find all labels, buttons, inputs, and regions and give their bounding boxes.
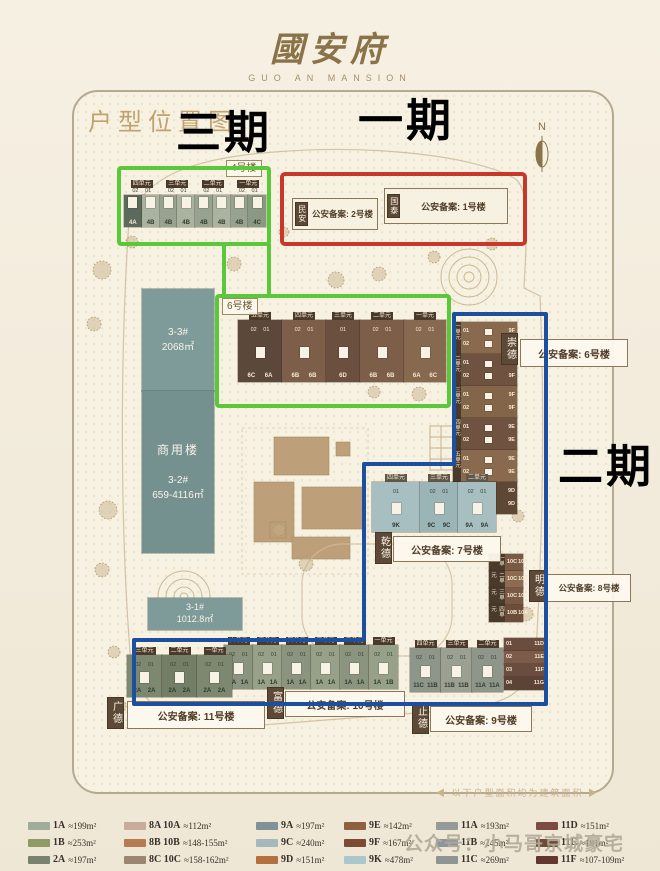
window-icon	[473, 503, 482, 514]
block-3-1-area: 1012.8㎡	[177, 614, 214, 626]
block-3-1: 3-1# 1012.8㎡	[148, 598, 242, 630]
building-guotai-filing: 公安备案: 1号楼	[400, 200, 507, 213]
compass-n-label: N	[538, 121, 546, 133]
window-icon	[378, 347, 387, 358]
page-watermark: 公众号：小马哥京城豪宅	[404, 829, 624, 856]
building-fude-filing: 公安备案: 10号楼	[285, 691, 405, 717]
zhide-wing-row: 0111D	[504, 638, 546, 651]
header: 國安府 GUO AN MANSION	[0, 22, 660, 83]
building-4-tag: 4号楼	[226, 160, 262, 177]
fude-section: 一单元 02 01 1A1B	[369, 645, 398, 689]
window-icon	[485, 405, 492, 411]
commercial-building-label: 商用楼	[157, 441, 199, 459]
window-icon	[485, 393, 492, 399]
window-icon	[263, 663, 272, 674]
building-zhide: 四单元 02 01 11C11B 三单元 02 01 11B11B 二单元 02…	[410, 648, 503, 692]
unit-cell: 4B	[142, 195, 160, 227]
building-mingde: 一单元 10C10C 二单元 10C10C 三单元 10C10C 四单元 10B…	[489, 554, 523, 622]
fude-section: 三单元 02 01 1A1A	[311, 645, 340, 689]
legend-item: 1B≈253m²	[28, 837, 124, 848]
building-6-section: 四单元 02 01 6B6B	[282, 320, 326, 382]
unit-tag: 三单元	[166, 180, 188, 188]
building-chongde-filing: 公安备案: 6号楼	[520, 339, 628, 367]
building-qiande-name: 乾德	[375, 532, 392, 564]
compass-icon: N	[536, 121, 548, 172]
building-6-section: 一单元 02 01 6A6C	[404, 320, 446, 382]
window-icon	[392, 503, 401, 514]
window-icon	[235, 197, 244, 208]
block-3-3-area: 2068㎡	[162, 340, 194, 355]
window-icon	[164, 197, 173, 208]
door-numbers: 02 01	[239, 188, 258, 195]
building-mingde-filing: 公安备案: 8号楼	[547, 574, 631, 602]
window-icon	[292, 663, 301, 674]
chongde-section: 三单元 019F 029F	[453, 386, 517, 418]
window-icon	[350, 663, 359, 674]
building-4: 四单元 三单元 二单元 一单元 02 01 02 01 02 01 02 01 …	[124, 180, 266, 227]
block-3-2-area: 659-4116㎡	[152, 488, 204, 503]
building-guotai: 国泰 公安备案: 1号楼	[384, 188, 508, 224]
legend-swatch	[124, 856, 146, 864]
legend-swatch	[124, 839, 146, 847]
window-icon	[210, 672, 219, 683]
building-6-tag: 6号楼	[222, 298, 258, 315]
guangde-section: 一单元 02 01 2A2A	[197, 655, 232, 697]
building-minan-filing: 公安备案: 2号楼	[308, 208, 377, 220]
legend-swatch	[256, 839, 278, 847]
window-icon	[485, 329, 492, 335]
phase2-label: 二期	[558, 430, 654, 495]
window-icon	[485, 361, 492, 367]
fude-section: 四单元 02 01 1A1A	[282, 645, 311, 689]
legend-item: 8A 10A≈112m²	[124, 820, 256, 831]
legend-swatch	[256, 856, 278, 864]
zhide-wing-row: 0311F	[504, 664, 546, 677]
legend-swatch	[344, 822, 366, 830]
building-guangde-filing: 公安备案: 11号楼	[127, 701, 265, 729]
building-4-unit-tags: 四单元 三单元 二单元 一单元	[124, 180, 266, 188]
window-icon	[300, 347, 309, 358]
building-qiande: 四单元 01 9K 三单元 02 01 9C9C 二单元 02 01 9A9A	[372, 482, 496, 532]
door-numbers: 02 01	[168, 188, 187, 195]
window-icon	[321, 663, 330, 674]
qiande-section: 三单元 02 01 9C9C	[420, 482, 458, 532]
legend-swatch	[344, 839, 366, 847]
legend-swatch	[256, 822, 278, 830]
building-zhide-east-wing: 0111D 0211E 0311F 0411G	[504, 638, 546, 690]
window-icon	[421, 666, 430, 677]
block-3-1-id: 3-1#	[186, 602, 204, 614]
legend-item: 9C≈240m²	[256, 837, 344, 848]
building-qiande-filing: 公安备案: 7号楼	[393, 536, 501, 562]
window-icon	[253, 197, 262, 208]
mingde-section: 二单元 10C10C	[489, 571, 523, 588]
window-icon	[452, 666, 461, 677]
legend-swatch	[28, 839, 50, 847]
window-icon	[421, 347, 430, 358]
window-icon	[485, 425, 492, 431]
building-minan-name: 民安	[295, 202, 308, 226]
building-chongde-name: 崇德	[501, 333, 518, 365]
window-icon	[146, 197, 155, 208]
unit-cell: 4B	[195, 195, 213, 227]
legend-item: 1A≈199m²	[28, 820, 124, 831]
unit-tag: 二单元	[202, 180, 224, 188]
unit-tag: 四单元	[131, 180, 153, 188]
door-numbers: 02 01	[203, 188, 222, 195]
building-zhide-name: 止德	[412, 702, 429, 734]
window-icon	[483, 666, 492, 677]
legend-swatch	[28, 856, 50, 864]
door-numbers: 02 01	[132, 188, 151, 195]
fude-section: 五单元 02 01 1A1A	[253, 645, 282, 689]
heritage-building	[242, 428, 368, 574]
zhide-section: 二单元 02 01 11A11A	[472, 648, 503, 692]
building-4-cells: 4A 4B 4B 4B 4B 4B 4B 4C	[124, 195, 266, 227]
unit-cell: 4B	[213, 195, 231, 227]
fude-section: 二单元 02 01 1A1A	[340, 645, 369, 689]
building-guotai-name: 国泰	[387, 194, 400, 218]
chongde-section: 四单元 019E 029E	[453, 418, 517, 450]
block-3-3: 3-3# 2068㎡	[142, 289, 214, 391]
building-minan: 民安 公安备案: 2号楼	[292, 198, 378, 230]
building-zhide-filing: 公安备案: 9号楼	[430, 706, 532, 732]
window-icon	[485, 341, 492, 347]
building-6-section: 五单元 02 01 6C6A	[238, 320, 282, 382]
building-mingde-name: 明德	[529, 570, 546, 602]
building-guangde: 三单元 02 01 2A2A 二单元 02 01 2A2A 一单元 02 01 …	[127, 655, 232, 697]
unit-tag: 一单元	[237, 180, 259, 188]
legend-swatch	[28, 822, 50, 830]
zhide-wing-row: 0411G	[504, 677, 546, 690]
window-icon	[435, 503, 444, 514]
qiande-section: 二单元 02 01 9A9A	[458, 482, 496, 532]
unit-cell: 4B	[231, 195, 249, 227]
window-icon	[485, 373, 492, 379]
block-3-2-id: 3-2#	[168, 473, 188, 488]
building-6-section: 二单元 02 01 6B6B	[360, 320, 404, 382]
zhide-wing-row: 0211E	[504, 651, 546, 664]
block-3-2-commercial: 商用楼 3-2# 659-4116㎡	[142, 391, 214, 553]
legend-item: 8C 10C≈158-162m²	[124, 854, 256, 865]
zhide-section: 四单元 02 01 11C11B	[410, 648, 441, 692]
window-icon	[199, 197, 208, 208]
window-icon	[485, 437, 492, 443]
legend-item: 2A≈197m²	[28, 854, 124, 865]
window-icon	[128, 197, 137, 208]
zhide-section: 三单元 02 01 11B11B	[441, 648, 472, 692]
legend-swatch	[436, 856, 458, 864]
window-icon	[339, 347, 348, 358]
legend-item: 8B 10B≈148-155m²	[124, 837, 256, 848]
area-footnote: ◀ 以下户型面积均为建筑面积 ▶	[436, 786, 599, 799]
building-6-section: 三单元 01 6D	[326, 320, 360, 382]
window-icon	[175, 672, 184, 683]
qiande-section: 四单元 01 9K	[372, 482, 420, 532]
building-4-doors: 02 01 02 01 02 01 02 01	[124, 188, 266, 195]
legend-swatch	[344, 856, 366, 864]
legend-item: 9D≈151m²	[256, 854, 344, 865]
phase1-label: 一期	[358, 84, 454, 149]
legend-swatch	[536, 856, 558, 864]
window-icon	[140, 672, 149, 683]
window-icon	[217, 197, 226, 208]
block-3-3-id: 3-3#	[168, 325, 188, 340]
building-6: 五单元 02 01 6C6A 四单元 02 01 6B6B 三单元 01 6D …	[238, 320, 446, 382]
guangde-section: 二单元 02 01 2A2A	[162, 655, 197, 697]
window-icon	[379, 663, 388, 674]
unit-cell: 4B	[177, 195, 195, 227]
phase3-label: 三期	[176, 96, 272, 161]
building-fude-name: 富德	[267, 687, 284, 719]
brand-logo-cn: 國安府	[0, 22, 660, 71]
window-icon	[182, 197, 191, 208]
legend-swatch	[124, 822, 146, 830]
building-guangde-name: 广德	[107, 697, 124, 729]
mingde-section: 四单元 10B10A	[489, 605, 523, 622]
window-icon	[234, 663, 243, 674]
building-fude: 六单元 02 01 1A1A 五单元 02 01 1A1A 四单元 02 01 …	[224, 645, 398, 689]
unit-cell: 4B	[160, 195, 178, 227]
guangde-section: 三单元 02 01 2A2A	[127, 655, 162, 697]
brand-logo-en: GUO AN MANSION	[0, 73, 660, 83]
site-plan-panel: N 3-3# 2068㎡ 商用楼 3-2# 659-4116㎡ 3-1# 101…	[72, 90, 614, 794]
mingde-section: 三单元 10C10C	[489, 588, 523, 605]
unit-cell: 4A	[124, 195, 142, 227]
window-icon	[485, 457, 492, 463]
window-icon	[256, 347, 265, 358]
legend-item: 9A≈197m²	[256, 820, 344, 831]
unit-cell: 4C	[248, 195, 266, 227]
